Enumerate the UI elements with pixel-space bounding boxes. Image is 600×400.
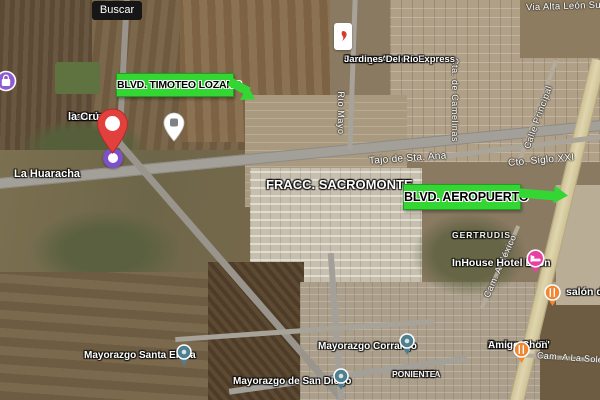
terrain-sports-field <box>55 62 100 94</box>
restaurant-poi-icon-barbacoa[interactable] <box>513 341 530 364</box>
satellite-map[interactable]: Via Alta León Sur Tajo de Sta. Ana Cto. … <box>0 0 600 400</box>
area-marker-icon-san-diego[interactable] <box>333 368 349 391</box>
hotel-poi-icon[interactable] <box>526 249 545 274</box>
callout-arrowhead-aeropuerto <box>553 185 569 204</box>
area-marker-icon-santa-elena[interactable] <box>176 344 192 367</box>
location-pin-icon[interactable] <box>96 108 129 154</box>
shopping-poi-icon[interactable] <box>0 70 17 92</box>
street-label-cta-de-camelinas: Cta. de Camelinas <box>450 58 460 142</box>
place-label-line: PONIENTE <box>392 369 435 380</box>
generic-poi-pin-icon[interactable] <box>163 112 185 142</box>
store-marker-icon[interactable] <box>334 23 352 50</box>
callout-blvd-aeropuerto: BLVD. AEROPUERTO <box>403 184 521 210</box>
street-label-rio-mayo: Río Mayo <box>336 91 346 134</box>
area-marker-icon-corralejo[interactable] <box>399 333 415 356</box>
place-label-line: GERTRUDIS <box>452 230 511 241</box>
place-label-line: Jardines Del Río <box>344 54 418 67</box>
place-label-salon[interactable]: salón de <box>566 285 600 299</box>
callout-blvd-timoteo-lozano: BLVD. TIMOTEO LOZANO <box>116 73 234 97</box>
place-label-la-huaracha[interactable]: La Huaracha <box>14 167 80 182</box>
restaurant-poi-icon-salon[interactable] <box>544 284 561 307</box>
search-tooltip[interactable]: Buscar <box>92 1 142 20</box>
place-label-fracc-sacromonte[interactable]: FRACC. SACROMONTE <box>266 176 413 194</box>
